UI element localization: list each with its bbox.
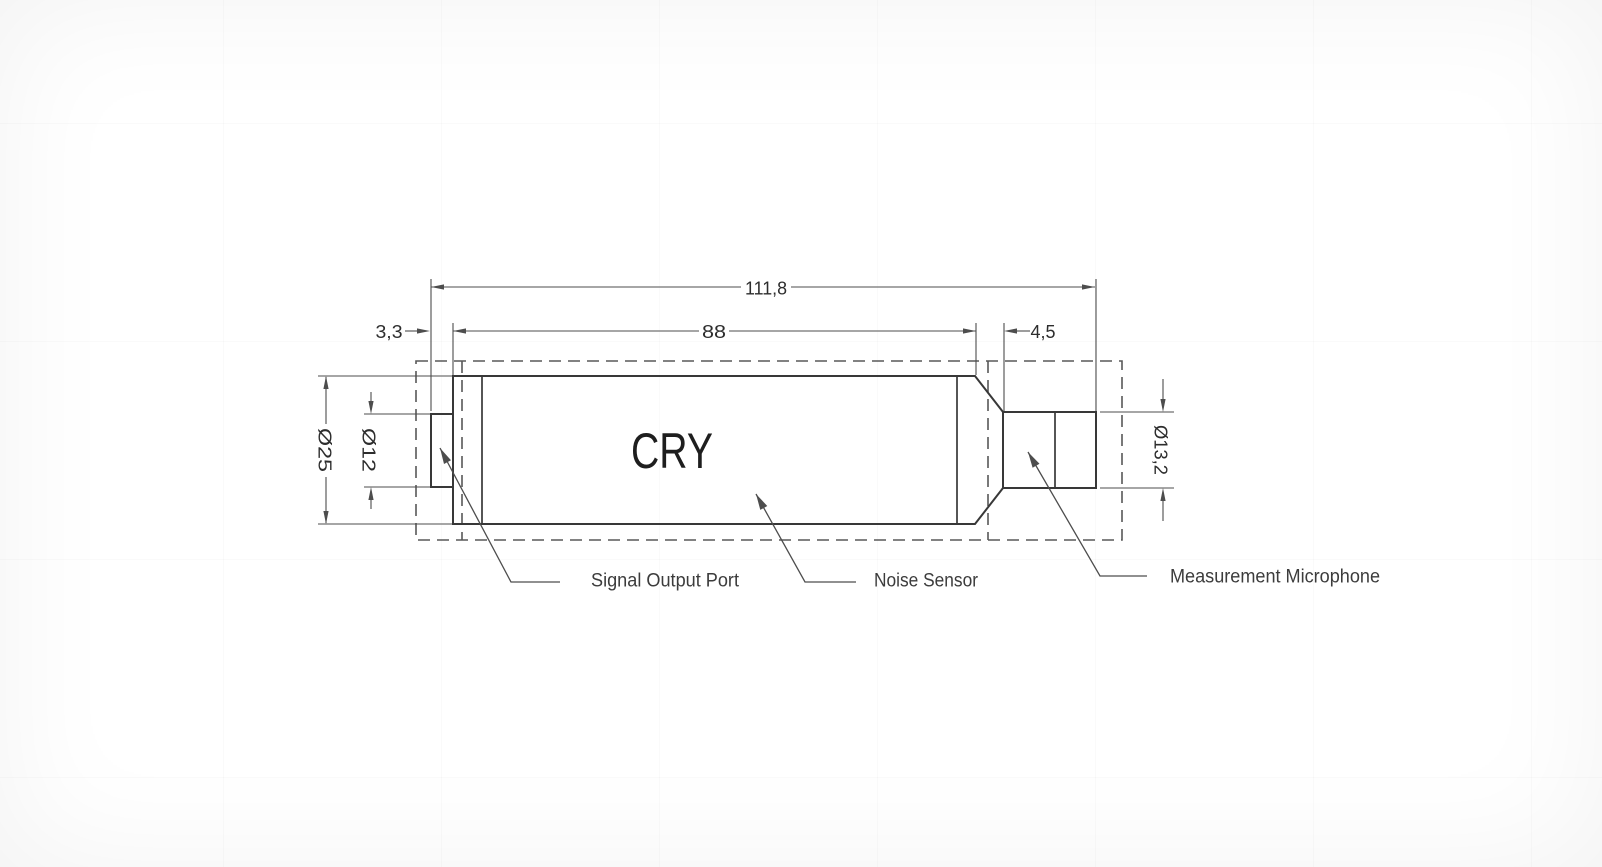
arrowhead: [1160, 488, 1165, 501]
leader-line: [756, 494, 856, 582]
dim-connector-diameter-value: Ø12: [359, 428, 380, 472]
arrowhead: [431, 284, 444, 289]
callout-noise-sensor-label: Noise Sensor: [874, 571, 979, 592]
leader-arrowhead: [1028, 452, 1040, 468]
callout-signal-output-port-label: Signal Output Port: [591, 571, 740, 592]
microphone-outline: [1003, 412, 1096, 488]
arrowhead: [368, 401, 373, 414]
arrowhead: [1004, 328, 1017, 333]
windscreen-outline: [416, 361, 1122, 540]
dim-body-length: 88: [453, 321, 976, 375]
device-geometry: [431, 376, 1096, 524]
arrowhead: [368, 487, 373, 500]
dim-taper-length: 4,5: [1004, 321, 1056, 411]
windscreen-dashed-box: [416, 361, 1122, 540]
callout-measurement-microphone: Measurement Microphone: [1028, 452, 1380, 588]
callout-noise-sensor: Noise Sensor: [756, 494, 979, 592]
leader-arrowhead: [756, 494, 767, 510]
dim-body-diameter-value: Ø25: [315, 428, 336, 472]
dim-microphone-diameter: Ø13,2: [1100, 379, 1174, 521]
dim-connector-offset: 3,3: [376, 321, 431, 342]
leader-line: [1028, 452, 1147, 576]
brand-text: CRY: [631, 423, 713, 479]
callout-measurement-microphone-label: Measurement Microphone: [1170, 567, 1380, 588]
leader-line: [440, 448, 560, 582]
dim-microphone-diameter-value: Ø13,2: [1151, 425, 1172, 475]
dim-total-length: 111,8: [431, 278, 1096, 412]
dim-body-length-value: 88: [702, 321, 726, 342]
sensor-body-outline: [453, 376, 1003, 524]
arrowhead: [323, 511, 328, 524]
arrowhead: [453, 328, 466, 333]
technical-drawing: CRY 111,8 88 3,3: [0, 0, 1602, 867]
background-grid: [0, 0, 1602, 867]
arrowhead: [417, 328, 430, 333]
arrowhead: [323, 376, 328, 389]
dim-total-length-value: 111,8: [745, 278, 787, 299]
arrowhead: [1082, 284, 1095, 289]
dim-connector-diameter: Ø12: [359, 392, 431, 509]
drawing-canvas: CRY 111,8 88 3,3: [0, 0, 1602, 867]
dim-taper-length-value: 4,5: [1031, 321, 1056, 342]
arrowhead: [963, 328, 976, 333]
dim-connector-offset-value: 3,3: [376, 321, 403, 342]
arrowhead: [1160, 399, 1165, 412]
